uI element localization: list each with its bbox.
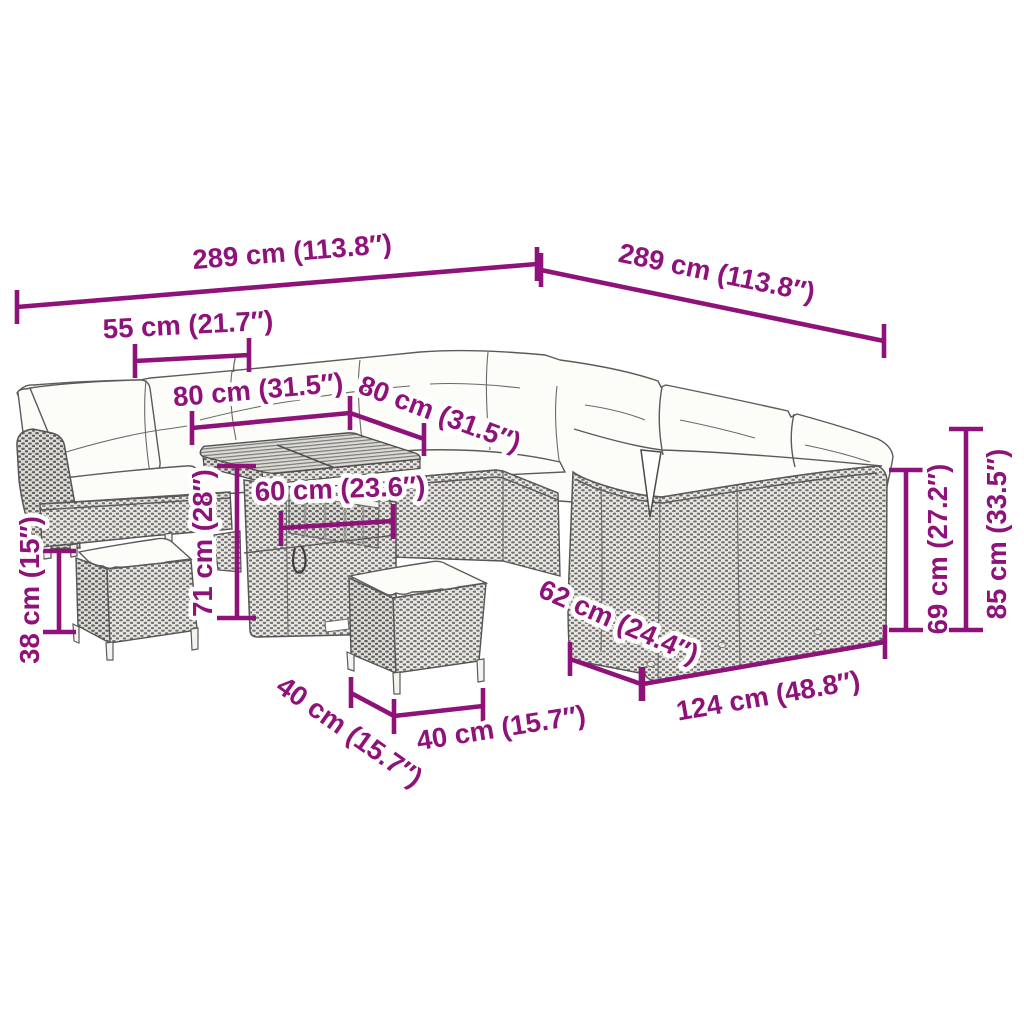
- svg-text:69 cm (27.2″): 69 cm (27.2″): [922, 464, 953, 635]
- svg-text:71 cm (28″): 71 cm (28″): [187, 469, 218, 617]
- svg-text:38 cm (15″): 38 cm (15″): [14, 516, 45, 664]
- svg-text:85 cm (33.5″): 85 cm (33.5″): [981, 449, 1012, 620]
- svg-text:60 cm (23.6″): 60 cm (23.6″): [254, 470, 426, 507]
